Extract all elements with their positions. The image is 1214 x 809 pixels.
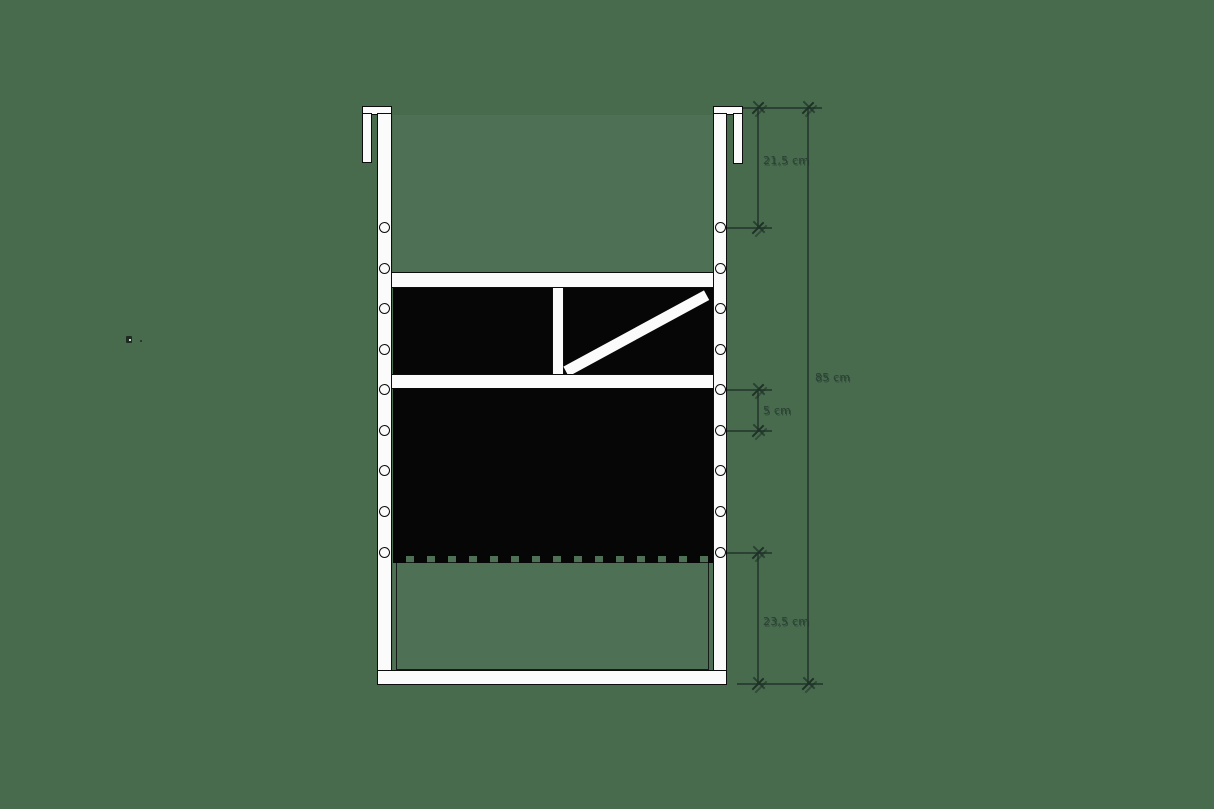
rail-hole — [715, 384, 726, 395]
rail-hole — [379, 303, 390, 314]
rail-hole — [715, 425, 726, 436]
rail-hole — [715, 506, 726, 517]
rail-hole — [379, 263, 390, 274]
dimline-23-5 — [757, 553, 759, 684]
dashed-panel-edge — [393, 556, 713, 563]
rail-hole — [379, 547, 390, 558]
dim-label-21-5: 21,5 cm — [763, 154, 809, 167]
lower-black-panel — [393, 388, 713, 556]
top-rung — [391, 272, 714, 288]
rail-hole — [715, 344, 726, 355]
vertical-brace — [552, 288, 564, 374]
rail-hole — [715, 547, 726, 558]
background-artifact-dot-2 — [140, 340, 142, 342]
lower-open-panel-outline — [396, 562, 709, 670]
dim-label-23-5: 23,5 cm — [763, 615, 809, 628]
rail-hole — [379, 425, 390, 436]
rail-hole — [379, 384, 390, 395]
dimline-85 — [807, 108, 809, 684]
background-artifact-dot — [129, 339, 131, 341]
dimline-21-5 — [757, 108, 759, 228]
rail-hole — [379, 506, 390, 517]
rail-hole — [715, 465, 726, 476]
bottom-bar — [377, 670, 727, 685]
rail-hole — [715, 303, 726, 314]
rail-hole — [379, 344, 390, 355]
dim-label-85: 85 cm — [815, 371, 850, 384]
right-hook-leg — [733, 113, 743, 164]
left-hook-leg — [362, 113, 372, 163]
dim-label-5: 5 cm — [763, 404, 791, 417]
technical-drawing-canvas: 21,5 cm 85 cm 5 cm 23,5 cm — [0, 0, 1214, 809]
middle-rung — [391, 374, 714, 389]
rail-hole — [379, 222, 390, 233]
rail-hole — [715, 263, 726, 274]
rail-hole — [715, 222, 726, 233]
rail-hole — [379, 465, 390, 476]
